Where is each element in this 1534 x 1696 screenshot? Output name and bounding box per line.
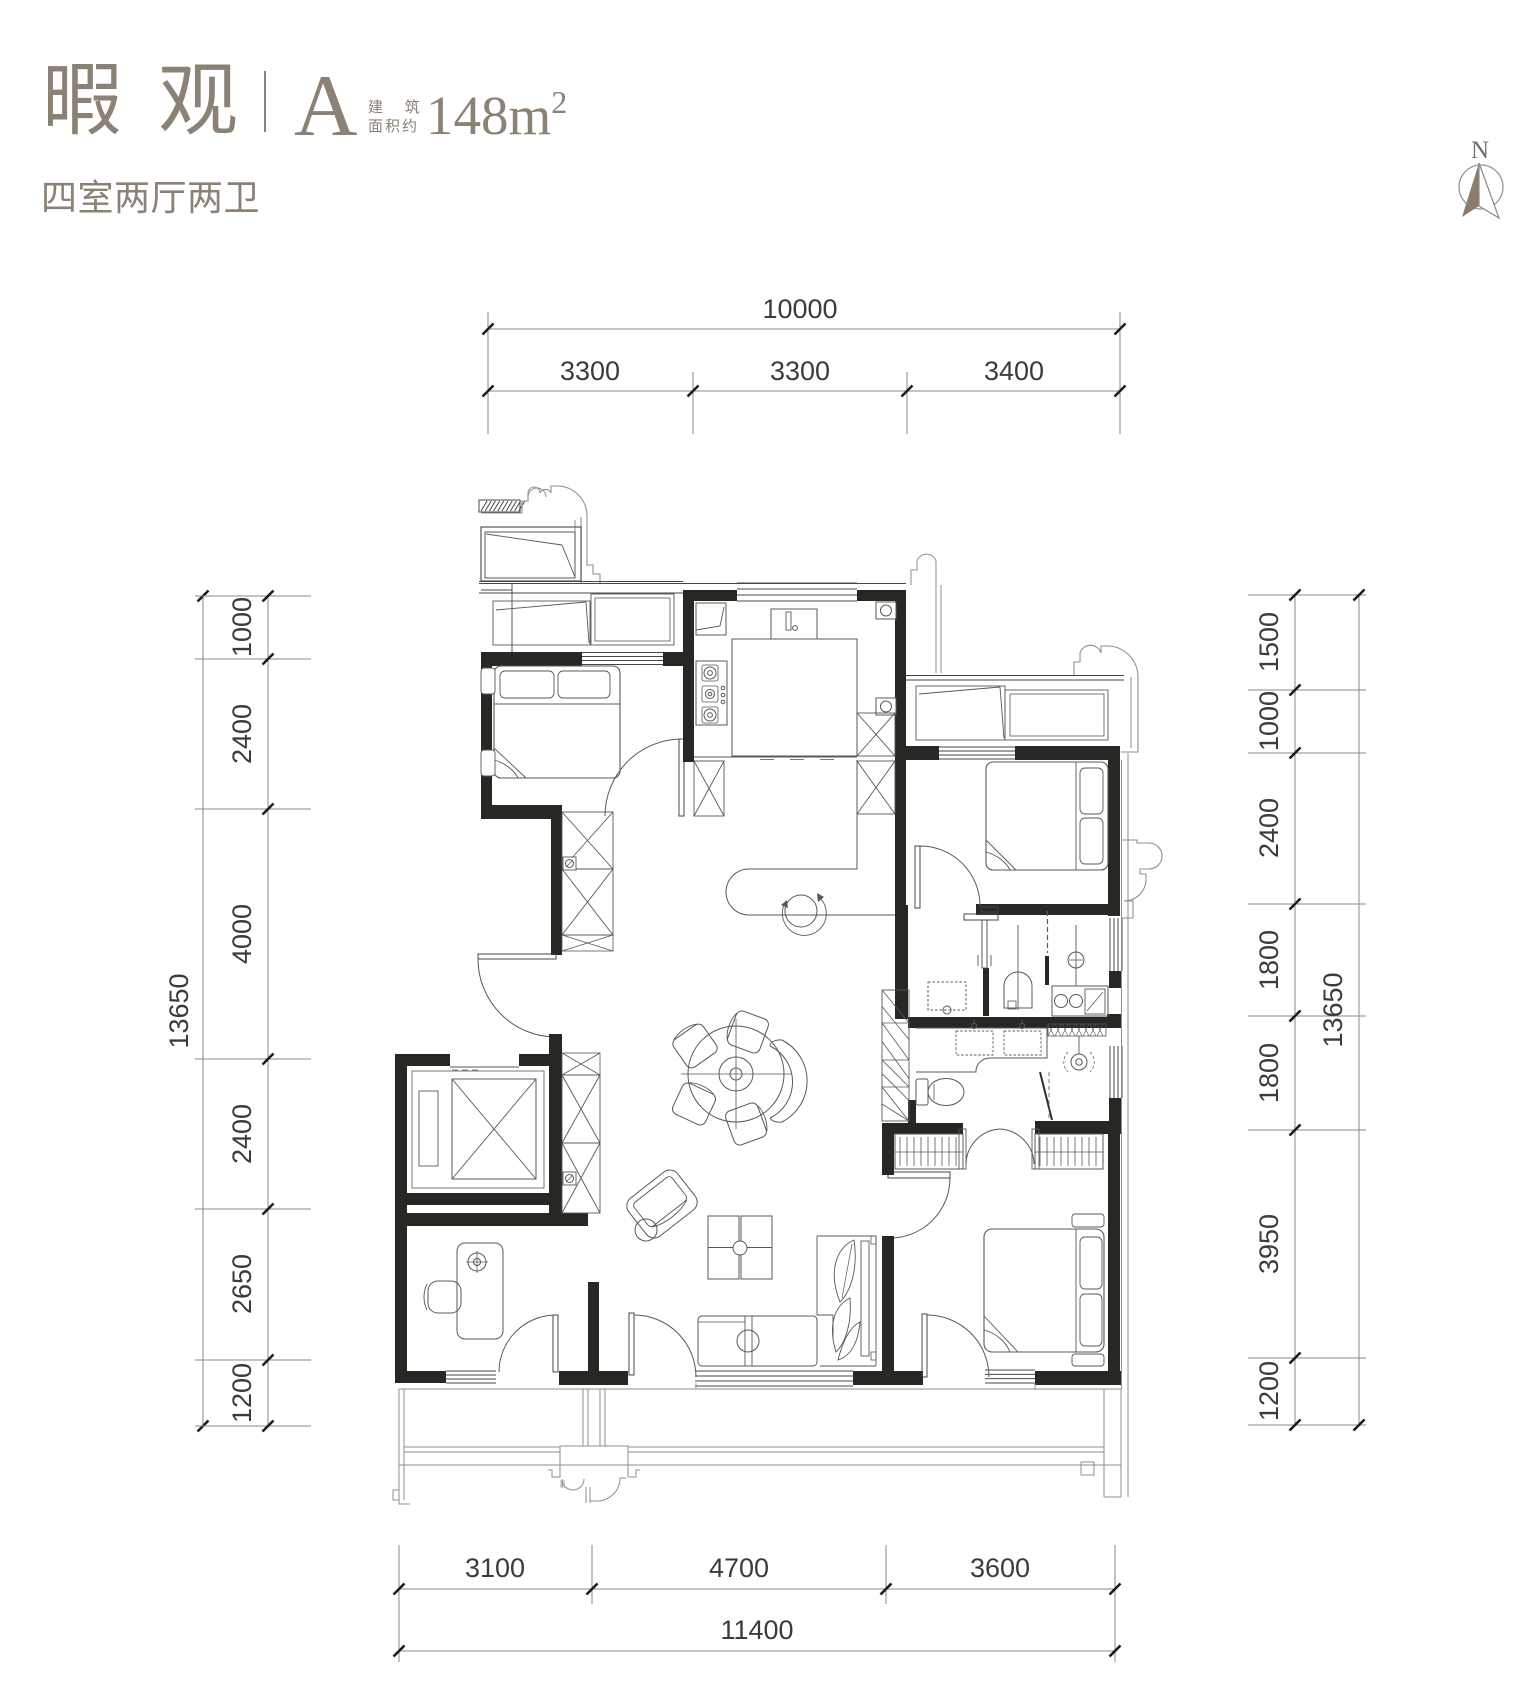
svg-text:4700: 4700 [709,1553,769,1583]
svg-text:1800: 1800 [1254,1043,1284,1103]
svg-text:3950: 3950 [1254,1214,1284,1274]
svg-text:13650: 13650 [1318,972,1348,1047]
svg-text:1200: 1200 [1254,1361,1284,1421]
svg-text:2650: 2650 [227,1254,257,1314]
svg-text:1000: 1000 [1254,691,1284,751]
svg-text:2400: 2400 [1254,798,1284,858]
svg-text:11400: 11400 [720,1615,793,1645]
svg-text:148m2: 148m2 [426,84,567,146]
svg-text:13650: 13650 [164,973,194,1048]
svg-text:建 筑: 建 筑 [368,99,429,116]
svg-text:N: N [1471,137,1489,164]
svg-text:3300: 3300 [560,356,620,386]
svg-text:3300: 3300 [770,356,830,386]
svg-text:暇 观: 暇 观 [42,58,246,146]
svg-text:1500: 1500 [1254,612,1284,672]
svg-text:1200: 1200 [227,1363,257,1423]
svg-text:2400: 2400 [227,1104,257,1164]
svg-text:2400: 2400 [227,704,257,764]
svg-text:4000: 4000 [227,904,257,964]
svg-text:1800: 1800 [1254,930,1284,990]
svg-text:10000: 10000 [762,294,837,324]
svg-text:A: A [294,58,358,155]
svg-text:3600: 3600 [970,1553,1030,1583]
svg-text:面积约: 面积约 [368,118,419,135]
svg-text:四室两厅两卫: 四室两厅两卫 [41,178,260,218]
svg-text:3400: 3400 [984,356,1044,386]
svg-text:1000: 1000 [227,597,257,657]
svg-text:3100: 3100 [465,1553,525,1583]
